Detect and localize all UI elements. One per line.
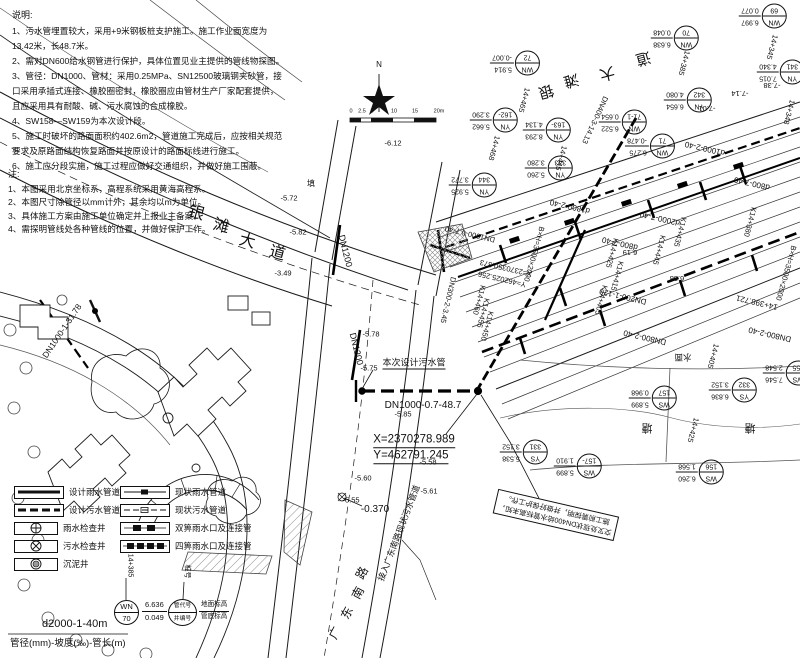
manhole-symbol: YN3426.6544.080 xyxy=(664,88,712,113)
pipe-code: YN xyxy=(781,72,800,84)
invert-elevation: 3.152 xyxy=(709,380,731,390)
map-label: 水面 xyxy=(674,353,691,362)
pipe-code: YN xyxy=(473,185,496,197)
well-number: 344 xyxy=(473,173,496,185)
legend-label: 现状雨水管道 xyxy=(175,486,226,498)
well-number: 156 xyxy=(700,460,723,472)
note-line: 4、需探明管线处各种管线的位置，并做好保护工作。 xyxy=(8,223,234,237)
example-manhole-circle: WN 70 xyxy=(114,600,139,625)
map-label: -0.370 xyxy=(361,505,389,515)
example-chainage: 14+385 xyxy=(126,554,133,578)
well-number: 163- xyxy=(547,118,570,130)
notes-title: 注: xyxy=(8,168,234,182)
legend-row: 双箅雨水口及连接管 xyxy=(120,521,252,535)
manhole-values: 5.9253.772 xyxy=(449,175,471,196)
legend-label: 沉泥井 xyxy=(63,558,89,570)
note-line: 5、施工时破坏的路面面积约402.6m2，管道施工完成后，应按相关规范要求及原路… xyxy=(12,129,286,159)
invert-elevation: 3.290 xyxy=(470,110,492,120)
invert-elevation: 0.654 xyxy=(599,112,621,122)
pipe-code: YS xyxy=(524,452,547,464)
legend-label: 污水检查井 xyxy=(63,540,106,552)
map-label: 15 xyxy=(412,109,418,115)
legend-label: 四箅雨水口及连接管 xyxy=(175,540,252,552)
ground-elevation: 6.275 xyxy=(625,146,649,157)
manhole-circle: WN69 xyxy=(762,4,787,29)
legend-row: 设计污水管道 xyxy=(14,503,120,517)
manhole-symbol: YN3417.0154.340 xyxy=(757,60,800,85)
note-line: 4、SW158—SW159为本次设计段。 xyxy=(12,114,286,129)
pipe-code: YS xyxy=(733,390,756,402)
manhole-values: 8.2934.134 xyxy=(523,120,545,141)
pipe-code: WN xyxy=(763,16,786,28)
manhole-symbol: YN162-5.6623.290 xyxy=(470,108,518,133)
pipe-code: YN xyxy=(494,120,517,132)
map-label: -3.49 xyxy=(274,269,291,277)
manhole-symbol: WS157-5.8991.910 xyxy=(554,454,602,479)
rain-inspection-well-symbol xyxy=(14,522,58,535)
double-grate-inlet-symbol xyxy=(120,522,170,535)
pipe-code: WS xyxy=(653,398,676,410)
well-number: 341 xyxy=(781,60,800,72)
example-invert-elev: 0.049 xyxy=(142,614,167,622)
map-label: -5.75 xyxy=(360,364,377,372)
invert-elevation: 3.772 xyxy=(449,175,471,185)
manhole-values: 5.5383.152 xyxy=(500,442,522,463)
pipe-code: WS xyxy=(700,472,723,484)
map-label: -5.61 xyxy=(420,487,437,495)
manhole-circle: WN72 xyxy=(515,51,540,76)
manhole-circle: YN163- xyxy=(546,118,571,143)
manhole-circle: WN70 xyxy=(674,26,699,51)
map-label: 塘 xyxy=(642,422,653,433)
map-label: 本次设计污水管 xyxy=(382,359,445,370)
well-number: 331 xyxy=(524,440,547,452)
invert-elevation: 0.077 xyxy=(739,6,761,16)
note-line: 3、管径：DN1000、管材：采用0.25MPa、SN12500玻璃钢夹砂管，接… xyxy=(12,69,286,114)
manhole-values: 6.8363.152 xyxy=(709,380,731,401)
manhole-values: 5.2603.280 xyxy=(525,158,547,179)
legend-row: 沉泥井 xyxy=(14,557,89,571)
four-grate-inlet-symbol xyxy=(120,540,170,553)
sewage-inspection-well-symbol xyxy=(14,540,58,553)
ground-elevation: 6.638 xyxy=(651,38,673,49)
ground-elev-caption: 地面标高 xyxy=(199,602,229,612)
invert-elevation: 4.134 xyxy=(523,120,545,130)
manhole-circle: YS332 xyxy=(732,378,757,403)
manhole-values: 6.275-0.478 xyxy=(625,136,649,157)
manhole-symbol: WN71-16.5220.654 xyxy=(599,110,647,135)
note-line: 1、污水管埋置较大，采用+9米钢板桩支护施工。施工作业面宽度为13.42米，长4… xyxy=(12,24,286,54)
manhole-values: 6.6380.048 xyxy=(651,28,673,49)
map-label: 10 xyxy=(391,109,397,115)
ground-elevation: 5.260 xyxy=(525,168,547,179)
well-number: 70 xyxy=(675,26,698,38)
well-number: 155 xyxy=(787,361,800,373)
manhole-values: 6.6544.080 xyxy=(664,90,686,111)
map-label: 5 xyxy=(370,109,373,115)
existing-rain-pipe-symbol xyxy=(120,486,170,499)
pipe-code: WN xyxy=(623,122,646,134)
manhole-circle: YN343 xyxy=(548,156,573,181)
manhole-circle: YN341 xyxy=(780,60,800,85)
ground-elevation: 5.899 xyxy=(629,398,651,409)
manhole-symbol: YN163-8.2934.134 xyxy=(523,118,571,143)
legend-row: 雨水检查井 xyxy=(14,521,106,535)
map-label: 0 xyxy=(349,109,352,115)
manhole-symbol: YS3326.8363.152 xyxy=(709,378,757,403)
invert-elevation: 0.048 xyxy=(651,28,673,38)
ground-elevation: 5.914 xyxy=(490,63,514,74)
invert-elevation: 0.968 xyxy=(629,388,651,398)
well-number: 70 xyxy=(115,613,138,624)
invert-elevation: 1.568 xyxy=(676,462,698,472)
legend-label: 雨水检查井 xyxy=(63,522,106,534)
map-label: -7.14 xyxy=(731,89,748,97)
manhole-values: 5.914-0.007 xyxy=(490,53,514,74)
legend-label: 双箅雨水口及连接管 xyxy=(175,522,252,534)
pipe-code: WS xyxy=(787,373,800,385)
legend-row: 污水检查井 xyxy=(14,539,106,553)
invert-elevation: 3.280 xyxy=(525,158,547,168)
manhole-circle: WS155 xyxy=(786,361,800,386)
pipe-code: YN xyxy=(688,100,711,112)
pipe-code-caption: 管代号 xyxy=(169,600,196,613)
manhole-values: 6.2601.568 xyxy=(676,462,698,483)
ground-elevation: 8.293 xyxy=(523,130,545,141)
scale-bar xyxy=(350,118,436,122)
design-rain-pipe-symbol xyxy=(14,486,64,499)
sediment-well-symbol xyxy=(14,558,58,571)
map-label: -6.12 xyxy=(384,139,401,147)
ground-elevation: 6.997 xyxy=(739,16,761,27)
manhole-values: 5.6623.290 xyxy=(470,110,492,131)
pipe-code: WN xyxy=(651,146,674,158)
manhole-symbol: YS3315.5383.152 xyxy=(500,440,548,465)
example-ground-elev: 6.636 xyxy=(142,601,167,612)
manhole-symbol: YN3435.2603.280 xyxy=(525,156,573,181)
ground-elevation: 7.546 xyxy=(763,373,785,384)
example-caption-circle: 管代号 井编号 xyxy=(168,599,197,626)
manhole-symbol: WS1557.5462.548 xyxy=(763,361,800,386)
manhole-values: 5.8991.910 xyxy=(554,456,576,477)
pipe-code: YN xyxy=(547,130,570,142)
manhole-symbol: WN716.275-0.478 xyxy=(625,134,675,159)
legend-row: 四箅雨水口及连接管 xyxy=(120,539,252,553)
invert-elevation: 3.152 xyxy=(500,442,522,452)
well-number: 71-1 xyxy=(623,110,646,122)
manhole-circle: WN71-1 xyxy=(622,110,647,135)
map-label: -5.58 xyxy=(419,458,436,466)
existing-sewage-pipe-symbol xyxy=(120,504,170,517)
map-label: -5.82 xyxy=(289,228,306,236)
manhole-symbol: WS1566.2601.568 xyxy=(676,460,724,485)
manhole-symbol: WN725.914-0.007 xyxy=(490,51,540,76)
well-number: 342 xyxy=(688,88,711,100)
general-notes-block: 注: 1、本图采用北京坐标系，高程系统采用黄海高程系。 2、本图尺寸除管径以mm… xyxy=(8,168,234,237)
manhole-circle: WS157- xyxy=(577,454,602,479)
manhole-circle: YS331 xyxy=(523,440,548,465)
design-sewage-pipe-symbol xyxy=(14,504,64,517)
well-number: 162- xyxy=(494,108,517,120)
well-number: 157 xyxy=(653,386,676,398)
manhole-circle: WS157 xyxy=(652,386,677,411)
legend-label: 设计污水管道 xyxy=(69,504,120,516)
map-label: 2.5 xyxy=(358,109,366,115)
ground-elevation: 6.836 xyxy=(709,390,731,401)
note-line: 1、本图采用北京坐标系，高程系统采用黄海高程系。 xyxy=(8,183,234,197)
map-label: 20m xyxy=(434,109,445,115)
manhole-values: 6.5220.654 xyxy=(599,112,621,133)
well-number: 71 xyxy=(651,134,674,146)
well-number-caption: 井编号 xyxy=(169,613,196,625)
well-number: 69 xyxy=(763,4,786,16)
manhole-values: 6.9970.077 xyxy=(739,6,761,27)
ground-elevation: 5.925 xyxy=(449,185,471,196)
pipe-spec-caption: 管径(mm)-坡度(‰)-管长(m) xyxy=(10,639,126,649)
manhole-values: 7.0154.340 xyxy=(757,62,779,83)
map-label: -5.55 xyxy=(342,496,359,504)
legend-label: 现状污水管道 xyxy=(175,504,226,516)
manhole-symbol: WS1575.8990.968 xyxy=(629,386,677,411)
map-label: 6.38 xyxy=(670,274,685,282)
ground-elevation: 6.260 xyxy=(676,472,698,483)
manhole-values: 5.8990.968 xyxy=(629,388,651,409)
ground-elevation: 5.538 xyxy=(500,452,522,463)
well-number: 157- xyxy=(578,454,601,466)
note-line: 2、需对DN600给水钢管进行保护，具体位置见业主提供的管线物探图。 xyxy=(12,54,286,69)
manhole-values: 7.5462.548 xyxy=(763,363,785,384)
well-number: 332 xyxy=(733,378,756,390)
invert-elevation: 4.080 xyxy=(664,90,686,100)
manhole-circle: WN71 xyxy=(650,134,675,159)
map-label: N xyxy=(376,61,382,69)
ground-elevation: 6.654 xyxy=(664,100,686,111)
invert-elevation: 1.910 xyxy=(554,456,576,466)
manhole-circle: WS156 xyxy=(699,460,724,485)
map-label: -5.78 xyxy=(362,330,379,338)
legend-label: 设计雨水管道 xyxy=(69,486,120,498)
manhole-symbol: WN706.6380.048 xyxy=(651,26,699,51)
legend-row: 现状雨水管道 xyxy=(120,485,226,499)
invert-elevation: 2.548 xyxy=(763,363,785,373)
well-number: 72 xyxy=(516,51,539,63)
pipe-code: WN xyxy=(516,63,539,75)
pipe-code: WS xyxy=(578,466,601,478)
invert-elevation: 4.340 xyxy=(757,62,779,72)
map-label: -5.72 xyxy=(280,194,297,202)
well-number: 343 xyxy=(549,156,572,168)
manhole-circle: YN344 xyxy=(472,173,497,198)
manhole-circle: YN342 xyxy=(687,88,712,113)
construction-notes-block: 说明: 1、污水管埋置较大，采用+9米钢板桩支护施工。施工作业面宽度为13.42… xyxy=(12,8,286,174)
notes-title: 说明: xyxy=(12,8,286,23)
invert-elevation: -0.478 xyxy=(625,136,649,146)
drainage-plan-drawing: 说明: 1、污水管埋置较大，采用+9米钢板桩支护施工。施工作业面宽度为13.42… xyxy=(0,0,800,658)
ground-elevation: 6.522 xyxy=(599,122,621,133)
invert-elev-caption: 管底标高 xyxy=(199,614,229,621)
ground-elevation: 7.015 xyxy=(757,72,779,83)
map-label: X=2370278.989 xyxy=(373,434,455,448)
pipe-spec: d2000-1-40m xyxy=(42,619,107,630)
map-label: -5.60 xyxy=(354,474,371,482)
ground-elevation: 5.899 xyxy=(554,466,576,477)
ground-elevation: 5.662 xyxy=(470,120,492,131)
map-label: 塘 xyxy=(745,422,756,433)
pipe-code: WN xyxy=(675,38,698,50)
pipe-code: WN xyxy=(115,601,138,613)
manhole-symbol: YN3445.9253.772 xyxy=(449,173,497,198)
invert-elevation: -0.007 xyxy=(490,53,514,63)
manhole-circle: YN162- xyxy=(493,108,518,133)
map-label: Y=462791.245 xyxy=(373,450,448,464)
legend-row: 现状污水管道 xyxy=(120,503,226,517)
map-label: -5.85 xyxy=(394,410,411,418)
manhole-symbol: WN696.9970.077 xyxy=(739,4,787,29)
legend-row: 设计雨水管道 xyxy=(14,485,120,499)
map-label: 填 xyxy=(307,180,315,188)
chainage-caption: 桩号 xyxy=(184,565,191,579)
pipe-code: YN xyxy=(549,168,572,180)
